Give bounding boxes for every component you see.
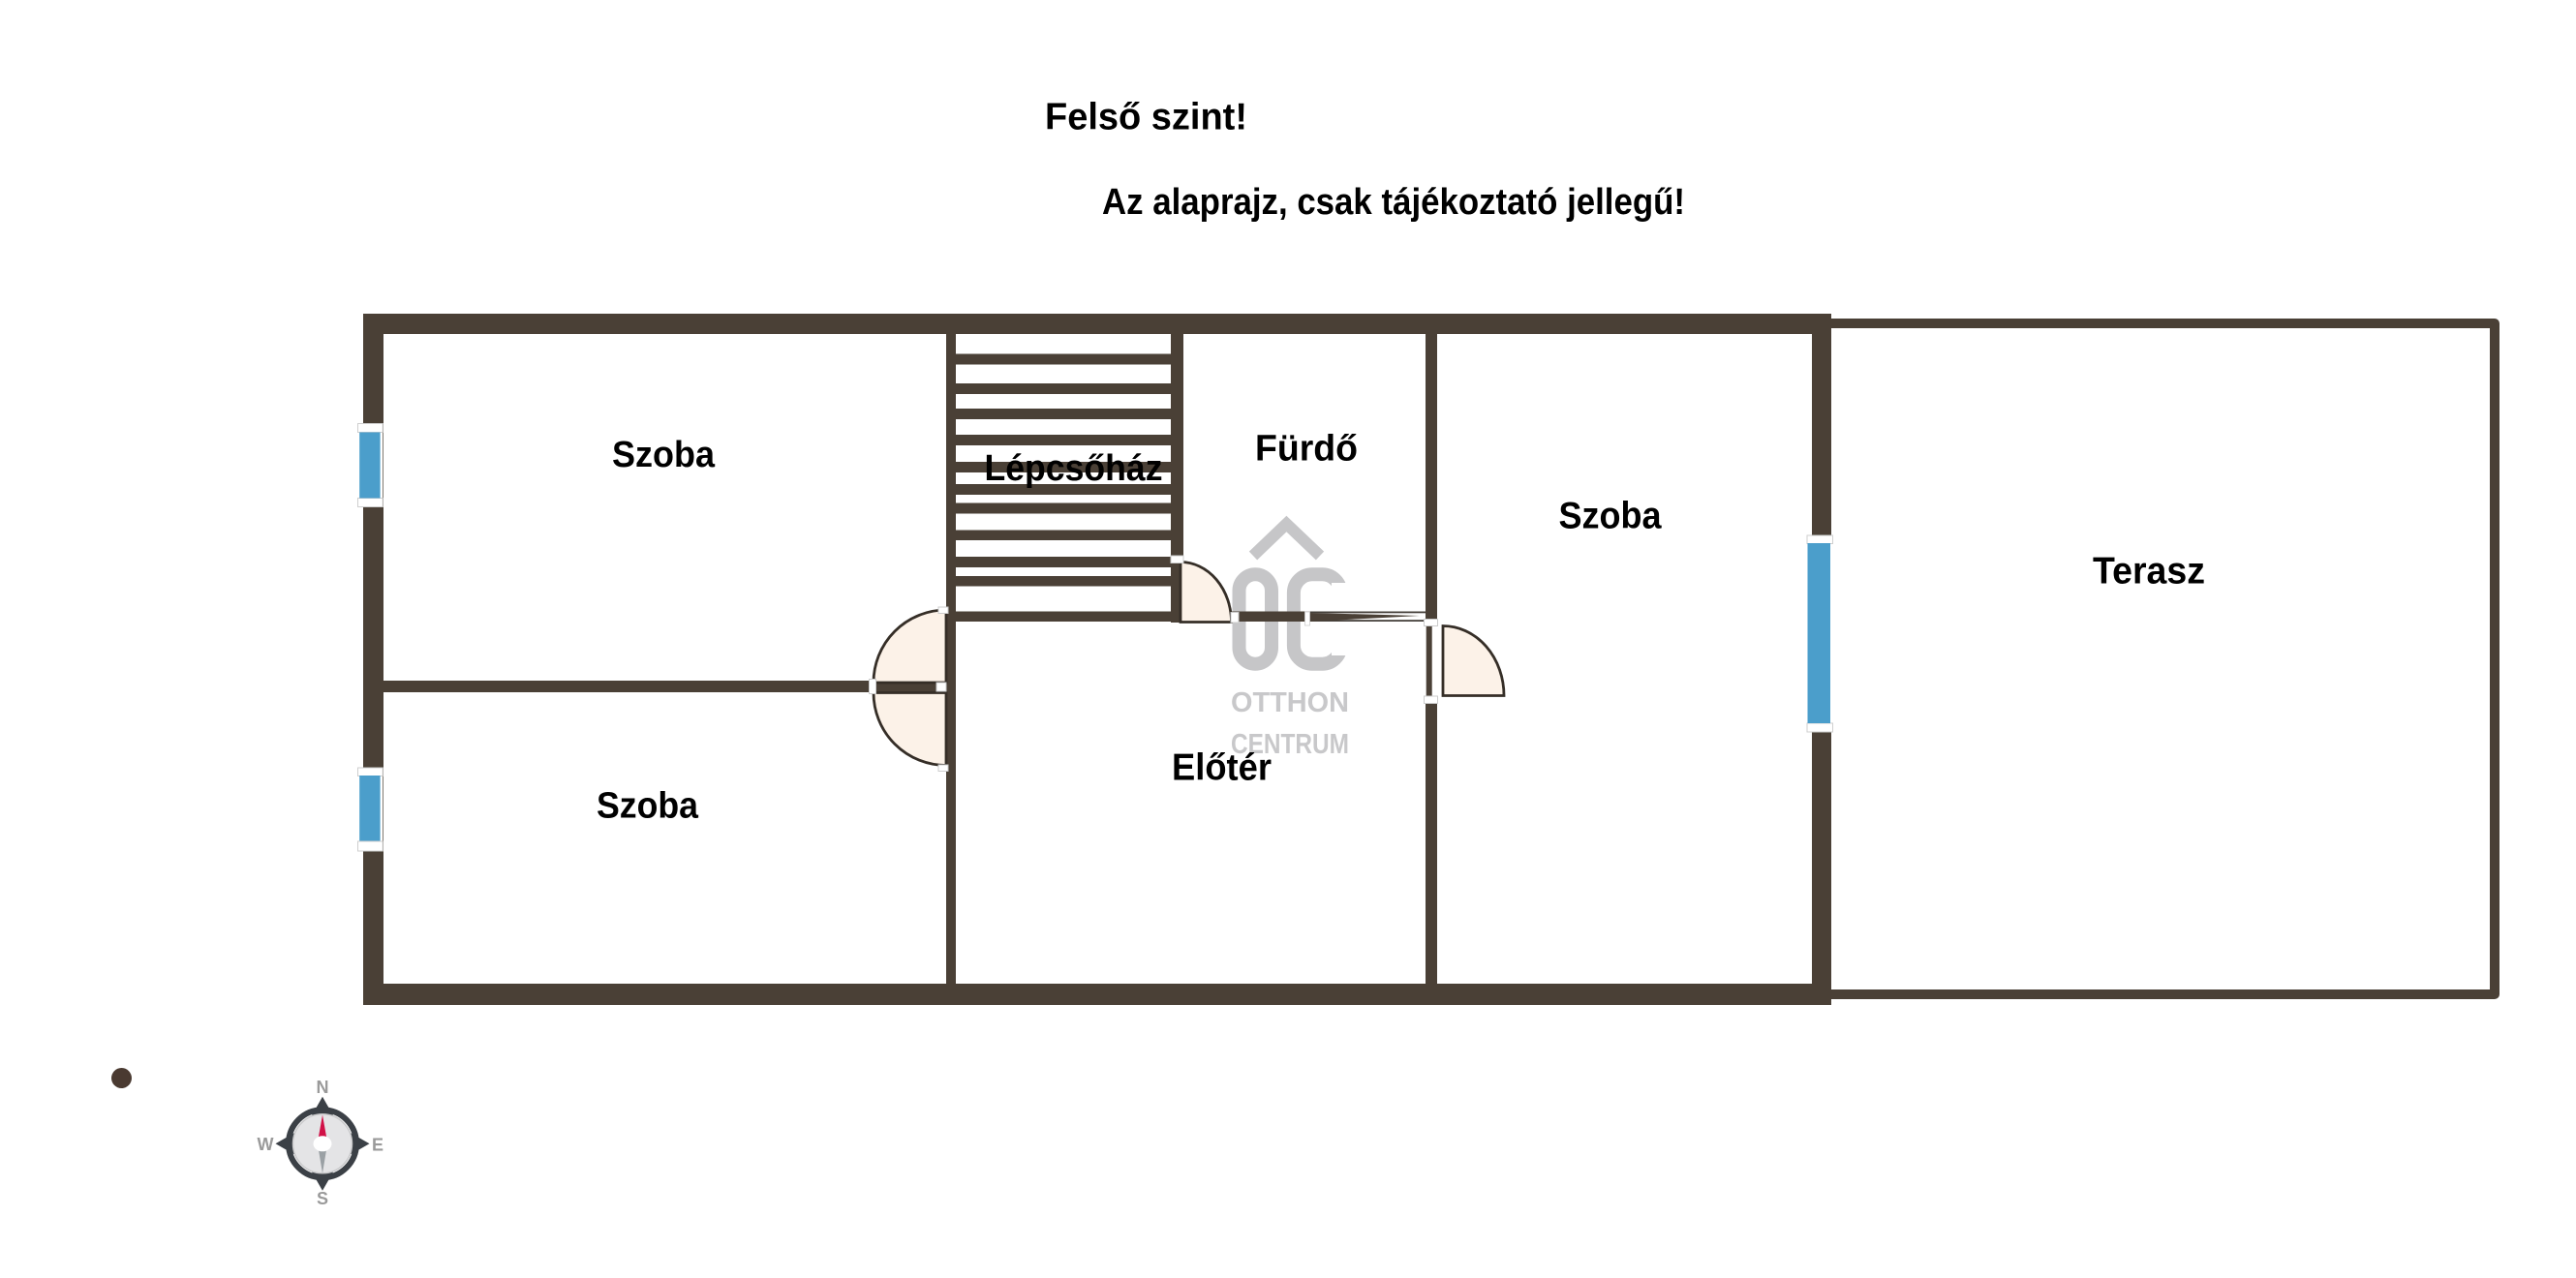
svg-text:N: N [317,1078,329,1097]
svg-text:E: E [372,1136,383,1155]
svg-text:Előtér: Előtér [1172,747,1272,789]
svg-text:OTTHON: OTTHON [1231,687,1349,718]
svg-text:Az alaprajz, csak tájékoztató: Az alaprajz, csak tájékoztató jellegű! [1102,182,1685,223]
svg-text:Terasz: Terasz [2093,551,2205,593]
svg-text:Szoba: Szoba [597,786,699,827]
svg-text:Fürdő: Fürdő [1255,429,1358,470]
svg-text:Szoba: Szoba [612,435,716,475]
svg-text:W: W [258,1135,274,1154]
svg-text:S: S [317,1189,328,1208]
svg-text:Lépcsőház: Lépcsőház [985,448,1163,489]
svg-text:Felső szint!: Felső szint! [1045,97,1247,138]
svg-text:Szoba: Szoba [1559,496,1663,537]
